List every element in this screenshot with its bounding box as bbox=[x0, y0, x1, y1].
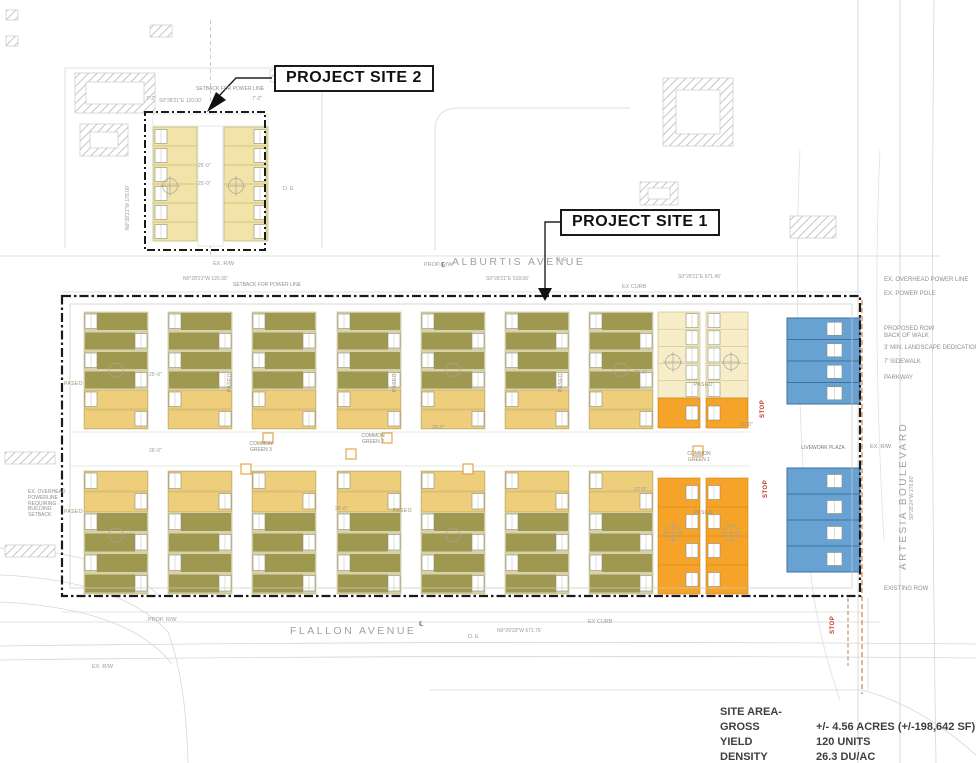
bearing-site2-top: S0°28'21"E 120.00' bbox=[159, 99, 202, 105]
bearing-alburtis-center: S0°28'21"E 518.06' bbox=[486, 277, 529, 283]
site2-arrowhead bbox=[207, 92, 226, 112]
stat-site-area: SITE AREA-GROSS+/- 4.56 ACRES (+/-198,64… bbox=[720, 705, 975, 735]
dim-27-site1: 27'-0" bbox=[634, 488, 647, 494]
project-site-1-callout: PROJECT SITE 1 bbox=[560, 209, 720, 236]
dim-25-site1-a: 25'-0" bbox=[149, 373, 162, 379]
livework-plaza-label: LIVEWORK PLAZA bbox=[800, 446, 846, 452]
ann-de-site2: D. E bbox=[283, 186, 294, 192]
paseo-label-4: PASEO bbox=[559, 362, 565, 392]
stop-marker-1: STOP bbox=[760, 396, 767, 418]
ann-sidewalk: 7' SIDEWALK bbox=[884, 359, 921, 366]
ann-de-top: D. E bbox=[556, 257, 567, 263]
dim-25-site1-b: 25'-0" bbox=[634, 371, 647, 377]
project-site-2-callout: PROJECT SITE 2 bbox=[274, 65, 434, 92]
street-flallon-avenue: FLALLON AVENUE bbox=[290, 625, 416, 637]
paseo-label-6: PASEO bbox=[694, 511, 713, 517]
centerline-symbol-bottom: ℄ bbox=[419, 621, 424, 629]
ann-ex-rw-top: EX. R/W bbox=[213, 261, 234, 267]
stop-marker-2: STOP bbox=[763, 476, 770, 498]
ann-ex-rw-right: EX. R/W bbox=[870, 444, 891, 450]
paseo-label-5: PASEO bbox=[694, 383, 713, 389]
site-statistics: SITE AREA-GROSS+/- 4.56 ACRES (+/-198,64… bbox=[720, 705, 975, 763]
ann-prop-rw-top: PROP. R/W bbox=[424, 262, 453, 268]
planter-squares bbox=[241, 433, 703, 474]
common-green-3-label: COMMON GREEN 3 bbox=[240, 442, 282, 454]
bearing-site2-bottom: N0°28'21"W 120.30' bbox=[183, 277, 228, 283]
stop-marker-3: STOP bbox=[830, 612, 837, 634]
ann-proposed-row: PROPOSED ROW bbox=[884, 326, 934, 333]
ann-ex-overhead-power-line: EX. OVERHEAD POWER LINE bbox=[884, 277, 968, 284]
dim-26-site1-c: 26'-0" bbox=[740, 423, 753, 429]
dim-7-2-left: 7'-2" bbox=[146, 97, 156, 103]
bearing-flallon: N0°29'33"W 671.76' bbox=[497, 629, 542, 635]
paseo-label-3: PASEO bbox=[393, 362, 399, 392]
paseo-label-8: PASEO bbox=[393, 509, 412, 515]
common-green-2-label: COMMON GREEN 2 bbox=[352, 434, 394, 446]
centerline-symbol-top: ℄ bbox=[441, 262, 446, 270]
ann-ex-curb-bottom: EX CURB bbox=[588, 619, 612, 625]
ann-setback-power-line-top: SETBACK FOR POWER LINE bbox=[196, 87, 264, 93]
ann-ex-rw-bottom: EX. R/W bbox=[92, 664, 113, 670]
ann-de-bottom: D. E bbox=[468, 634, 479, 640]
common-green-1-label: COMMON GREEN 1 bbox=[678, 452, 720, 464]
ann-back-of-walk: BACK OF WALK bbox=[884, 333, 929, 340]
stat-density: DENSITY26.3 DU/AC bbox=[720, 750, 975, 763]
dim-7-2-right: 7'-2" bbox=[252, 97, 262, 103]
site-plan-drawing bbox=[0, 0, 976, 763]
paseo-label-2: PASEO bbox=[228, 362, 234, 392]
paseo-label-1: PASEO bbox=[64, 382, 83, 388]
bearing-site2-left: N0°28'21"W 178.00' bbox=[126, 150, 132, 230]
ann-prop-rw-bottom: PROP. R/W bbox=[148, 617, 177, 623]
ann-existing-row: EXISTING ROW bbox=[884, 586, 928, 593]
site-plan-canvas: { "colors": { "olive": "#9f9850", "tan":… bbox=[0, 0, 976, 763]
ann-landscape-dedication: 3' MIN. LANDSCAPE DEDICATION bbox=[884, 345, 976, 352]
dim-26-site1-b: 26'-0" bbox=[432, 426, 445, 432]
dim-25-site2-b: 25'-0" bbox=[198, 182, 211, 188]
paseo-label-7: PASEO bbox=[64, 510, 83, 516]
dim-26-site1-d: 26'-0" bbox=[335, 507, 348, 513]
ann-ex-power-pole: EX. POWER POLE bbox=[884, 291, 936, 298]
bearing-alburtis-west: S0°28'21"E 671.45' bbox=[678, 275, 721, 281]
ann-ex-curb-top: EX CURB bbox=[622, 284, 646, 290]
dim-26-site1-a: 26'-0" bbox=[149, 449, 162, 455]
site1-arrowhead bbox=[538, 288, 552, 301]
stat-yield: YIELD120 UNITS bbox=[720, 735, 975, 750]
ann-parkway: PARKWAY bbox=[884, 375, 913, 382]
bearing-artesia: S0°28'24"W 276.80' bbox=[910, 430, 916, 520]
ann-setback-power-line-mid: SETBACK FOR POWER LINE bbox=[233, 283, 301, 289]
dim-25-site2-a: 25'-0" bbox=[198, 164, 211, 170]
